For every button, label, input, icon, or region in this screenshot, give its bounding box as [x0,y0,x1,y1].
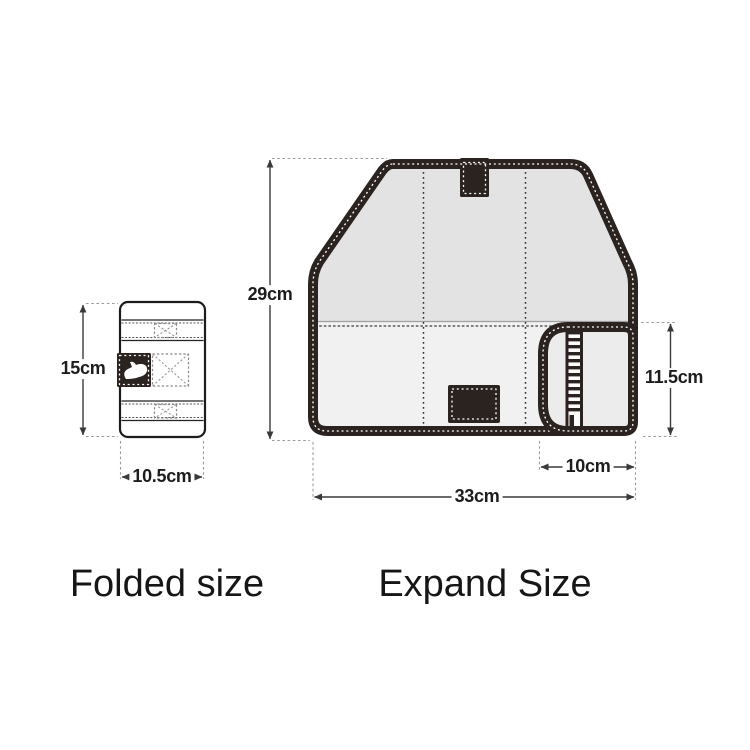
expand-width-label: 33cm [452,487,503,507]
flap-width-label: 10cm [563,457,614,477]
diagram-artwork [0,0,750,750]
expand-height-label: 29cm [245,285,296,305]
flap-height-label: 11.5cm [642,368,706,388]
expand-caption: Expand Size [378,563,591,606]
folded-height-label: 15cm [58,359,109,379]
fastener-pull [570,415,575,426]
folded-width-label: 10.5cm [129,467,194,487]
label-patch [448,385,500,423]
closure-flap [543,327,633,431]
folded-item [117,302,205,437]
product-dimension-diagram: 15cm 10.5cm 29cm 11.5cm 10cm 33cm Folded… [0,0,750,750]
expanded-item [305,152,645,431]
folded-caption: Folded size [70,563,264,606]
